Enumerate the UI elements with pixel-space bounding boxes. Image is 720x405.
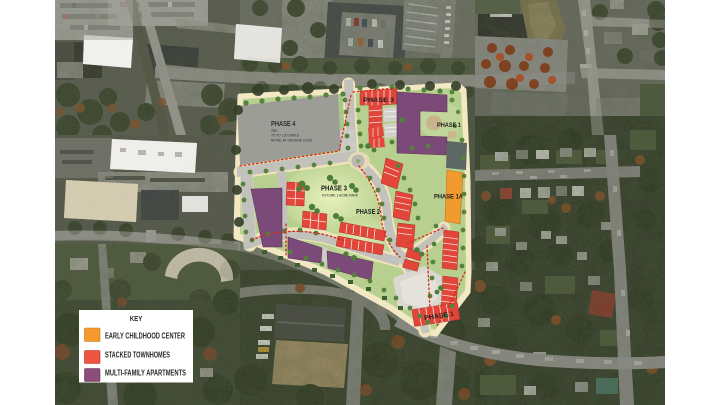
svg-text:STACKED TOWNHOMES: STACKED TOWNHOMES <box>105 351 170 360</box>
svg-text:PHASE 4: PHASE 4 <box>271 121 296 128</box>
svg-text:FUTURE 1 ACRE PARK: FUTURE 1 ACRE PARK <box>322 194 359 198</box>
svg-text:PHASE 1: PHASE 1 <box>437 122 461 129</box>
svg-text:PHASE 2: PHASE 2 <box>356 209 380 216</box>
svg-text:75 TO 120 UNITS: 75 TO 120 UNITS <box>271 134 300 138</box>
svg-text:RETAIL AT GROUND LEVEL: RETAIL AT GROUND LEVEL <box>271 138 313 142</box>
svg-text:KEY: KEY <box>130 314 143 323</box>
svg-text:PHASE 1A: PHASE 1A <box>434 195 464 201</box>
svg-text:EARLY CHILDHOOD CENTER: EARLY CHILDHOOD CENTER <box>105 331 185 340</box>
svg-text:PHASE 3: PHASE 3 <box>363 97 394 104</box>
svg-text:MULTI-FAMILY APARTMENTS: MULTI-FAMILY APARTMENTS <box>105 369 186 378</box>
svg-text:PHASE 3: PHASE 3 <box>321 186 347 193</box>
svg-text:TBD: TBD <box>271 129 278 133</box>
